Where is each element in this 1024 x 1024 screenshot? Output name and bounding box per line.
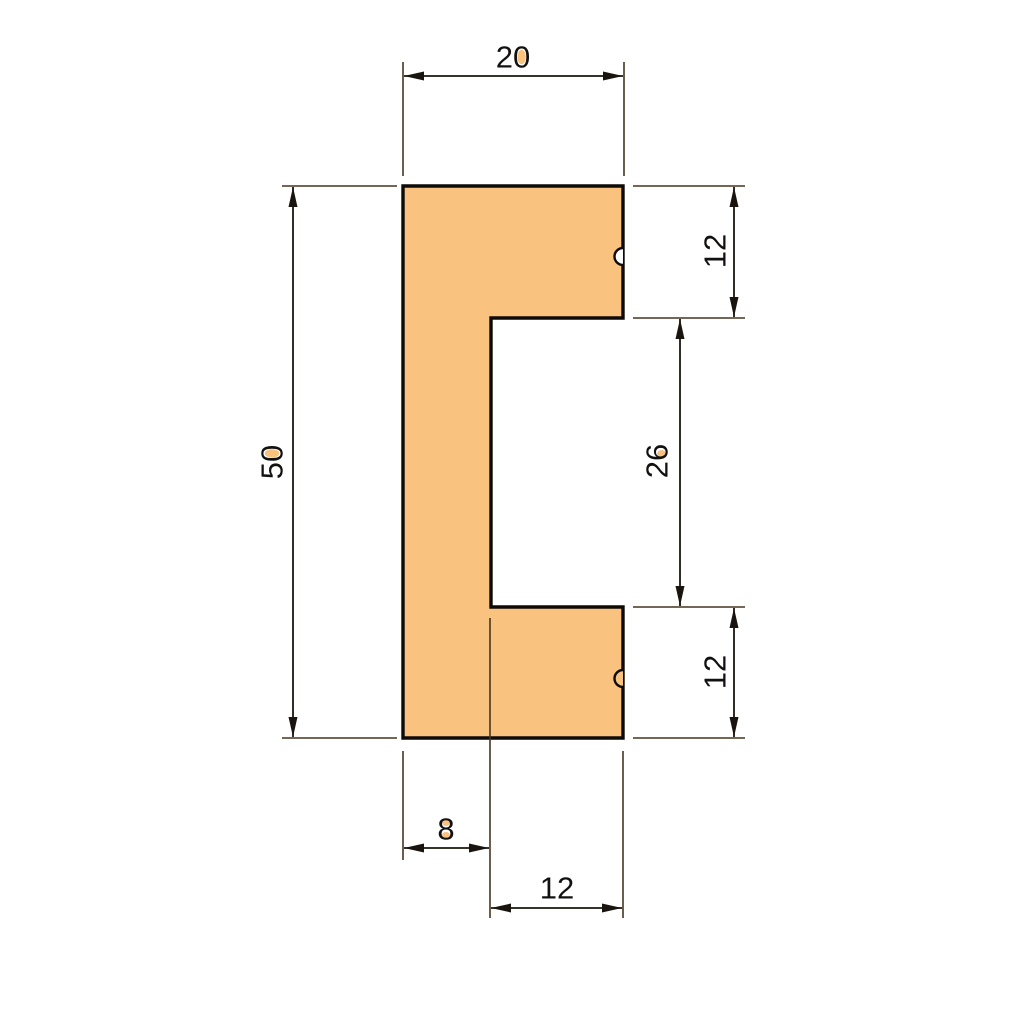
notch-top [615,248,624,265]
engineering-drawing-canvas: 20 50 12 26 12 8 [0,0,1024,1024]
dim-bottom-web-label: 8 [437,812,454,847]
dim-right-slot-height-label: 26 [640,444,675,478]
dim-top-width-label: 20 [496,40,530,75]
dim-right-flange-top-label: 12 [698,234,733,268]
dim-right-flange-bottom-label: 12 [698,655,733,689]
dim-left-height-label: 50 [255,445,290,479]
dim-bottom-slot-width-label: 12 [540,871,574,906]
notch-bottom [615,670,624,687]
drawing-background [0,0,1024,1024]
